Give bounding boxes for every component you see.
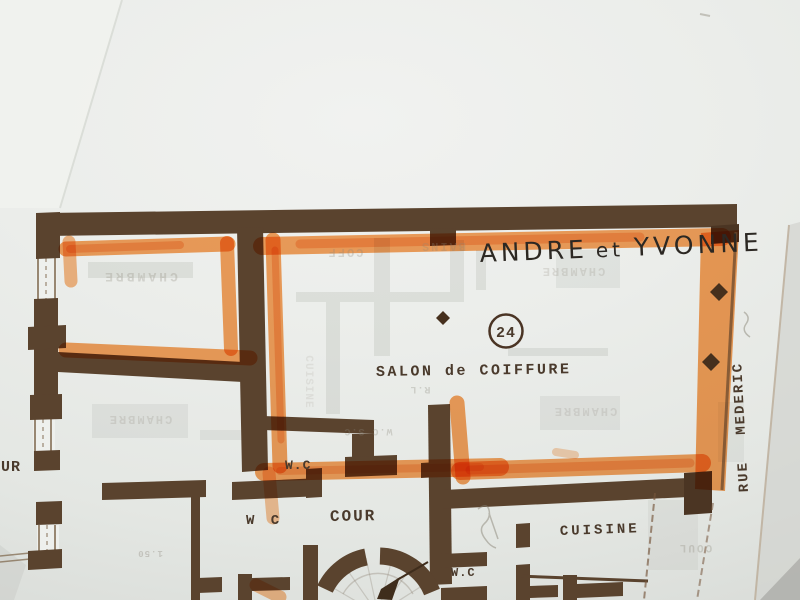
street-name-label: RUE MEDERIC	[730, 361, 753, 492]
wc-upper-label: W.C	[285, 458, 311, 473]
ghost-label: CUISINE	[302, 355, 314, 408]
ghost-label: W.C S.C	[343, 425, 392, 436]
ghost-label: R.L	[409, 383, 430, 394]
title-word-1: ANDRE	[479, 235, 588, 268]
ghost-label: CHAMBRE	[102, 269, 178, 284]
ghost-label: CHAMBRE	[553, 404, 617, 418]
salon-label: SALON de COIFFURE	[376, 361, 572, 381]
wc-left-label: W C	[246, 513, 283, 529]
ghost-label: COFF	[327, 245, 364, 259]
ghost-wall-shadows	[88, 238, 744, 570]
floor-plan-photo: CHAMBRE COFF BAINS CHAMBRE CHAMBRE CHAMB…	[0, 0, 800, 600]
column-diamond-markers	[436, 283, 728, 371]
ghost-label: CHAMBRE	[108, 412, 172, 426]
ghost-label: 1.50	[137, 548, 163, 558]
title-word-3: YVONNE	[632, 228, 763, 262]
ghost-label: BAINS	[420, 239, 466, 253]
ghost-label: COUL	[678, 541, 712, 553]
cuisine-label: CUISINE	[560, 521, 640, 540]
ghost-label: CHAMBRE	[541, 264, 605, 278]
spiral-staircase	[325, 556, 432, 600]
unit-number-badge: 24	[490, 315, 523, 348]
cour-cut-label: UR	[1, 459, 21, 476]
cour-label: COUR	[330, 507, 377, 526]
wc-lower-label: W.C	[451, 566, 476, 580]
floor-plan-drawing: CHAMBRE COFF BAINS CHAMBRE CHAMBRE CHAMB…	[0, 0, 800, 600]
unit-number: 24	[496, 325, 516, 342]
title-word-2: et	[595, 237, 624, 262]
